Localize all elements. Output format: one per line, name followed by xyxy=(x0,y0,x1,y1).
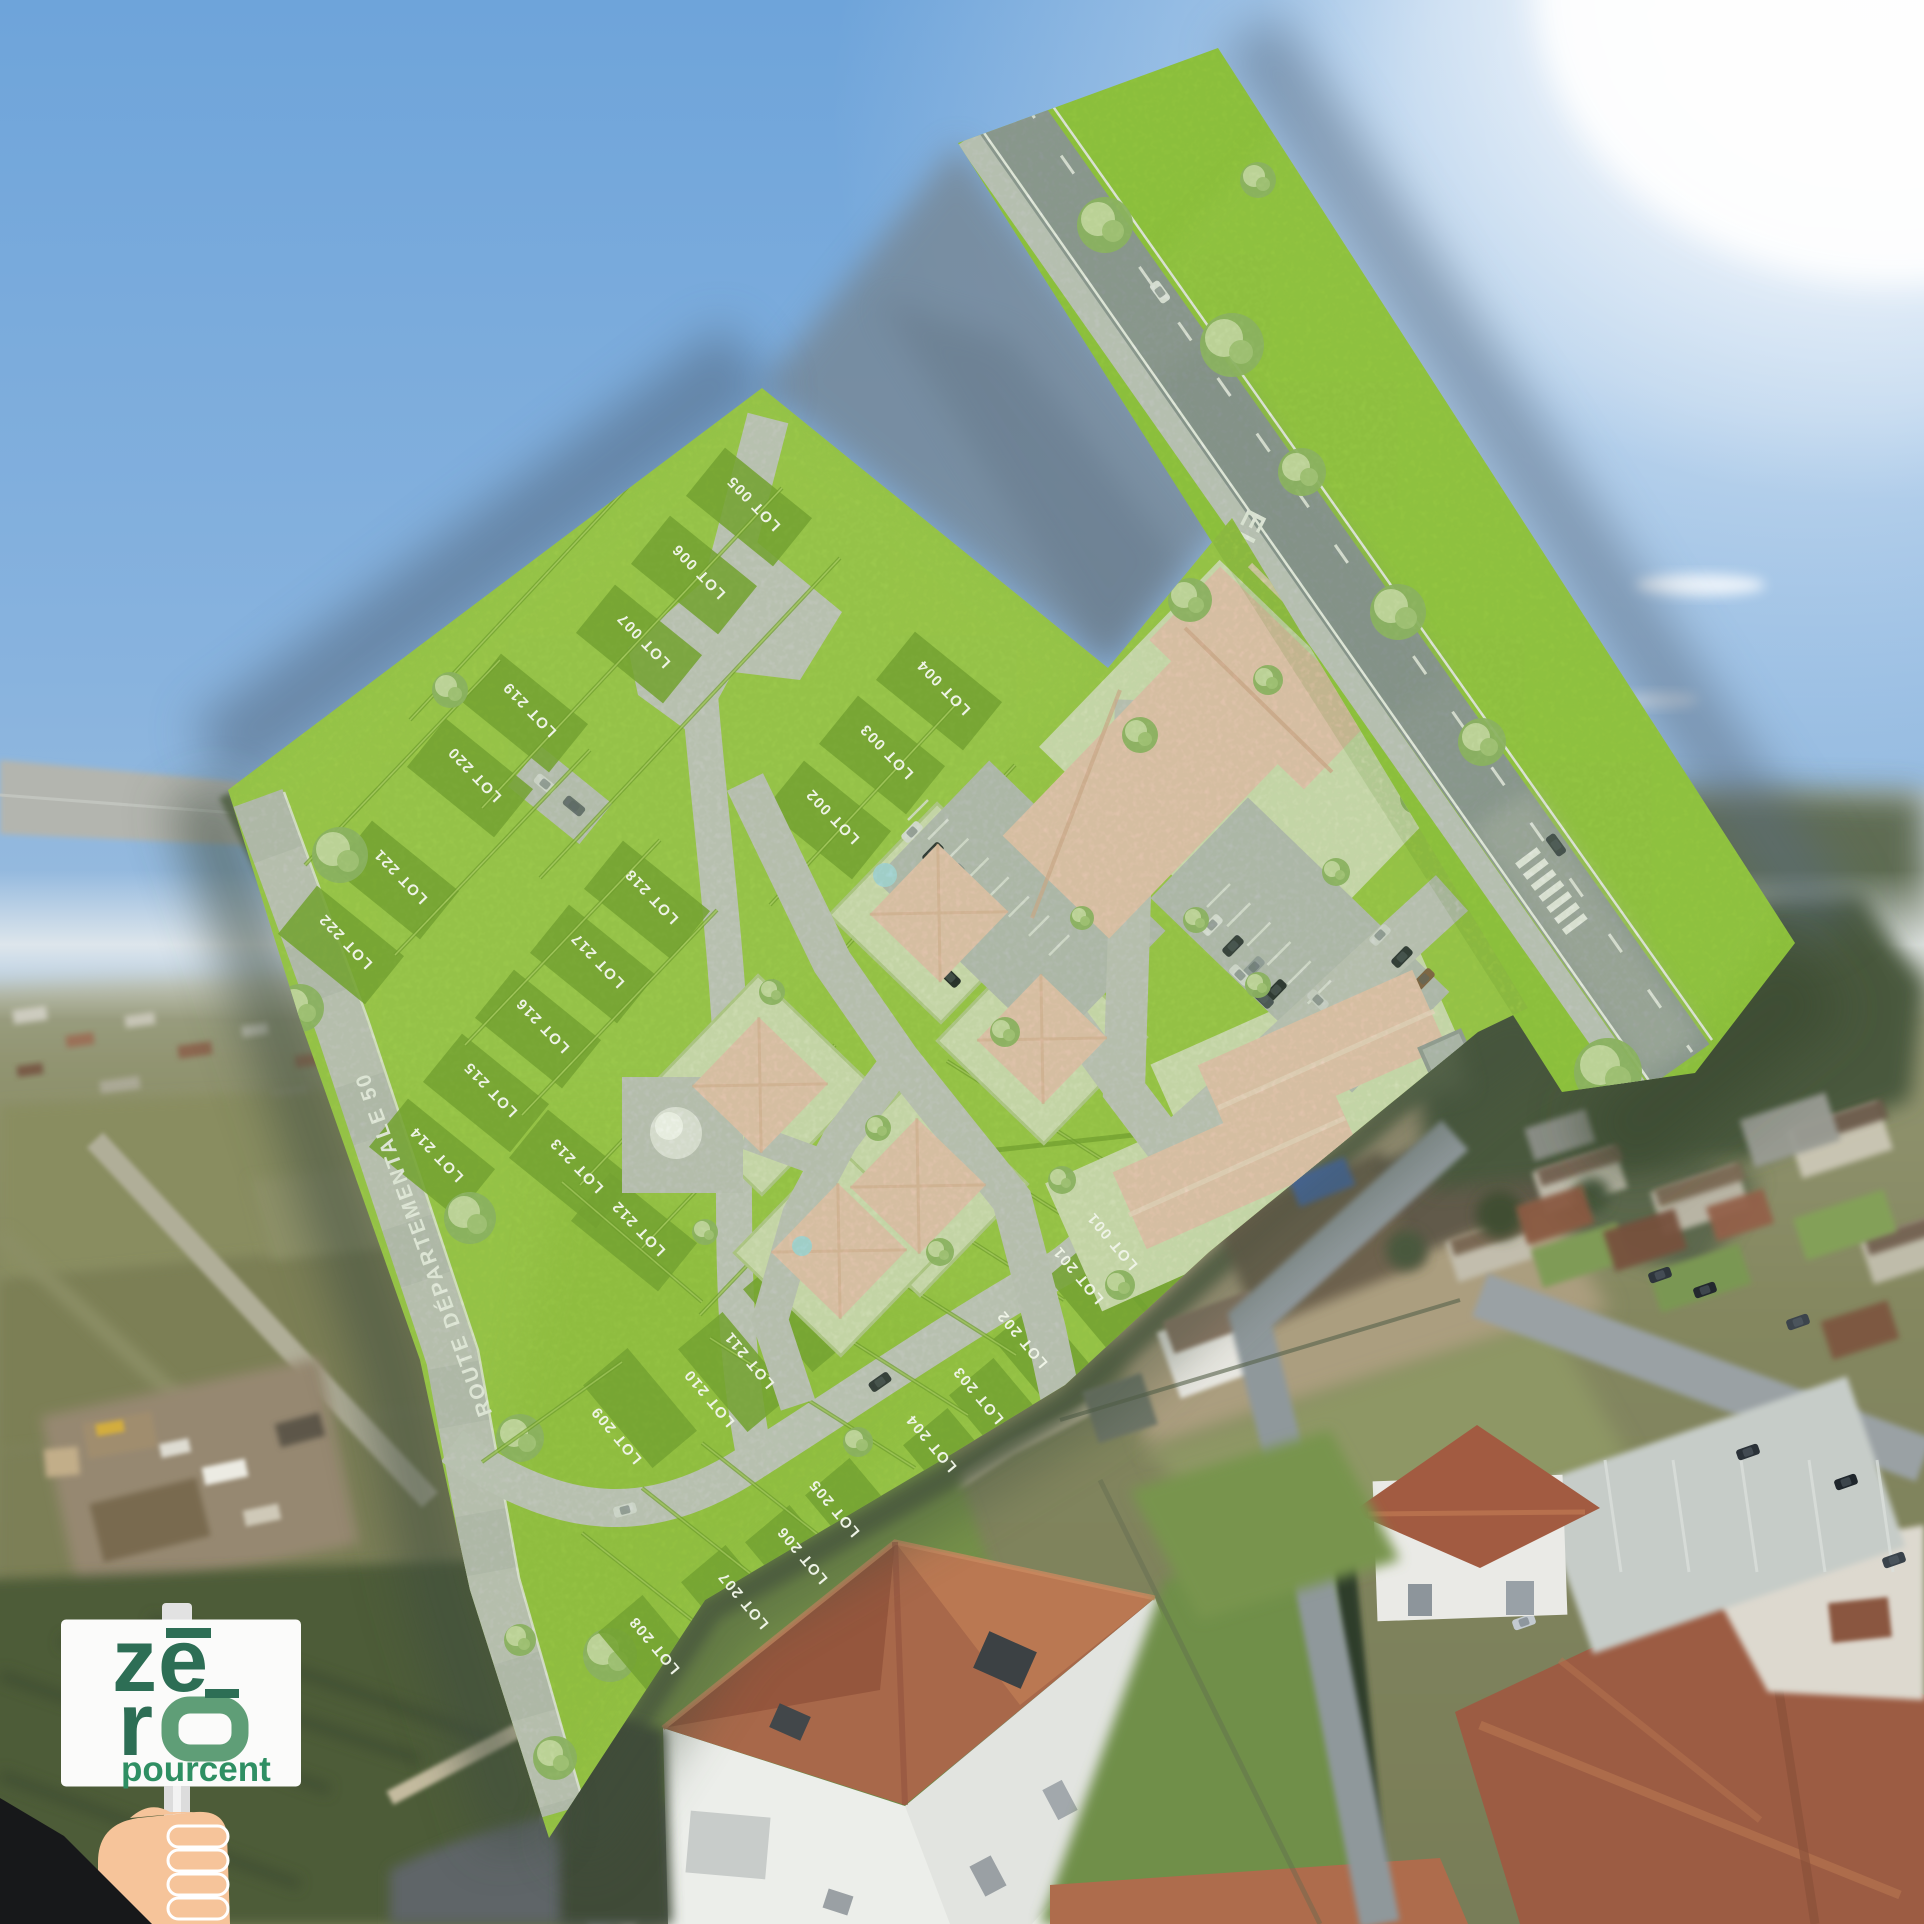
svg-text:e: e xyxy=(158,1611,208,1711)
svg-text:pourcent: pourcent xyxy=(121,1750,271,1789)
